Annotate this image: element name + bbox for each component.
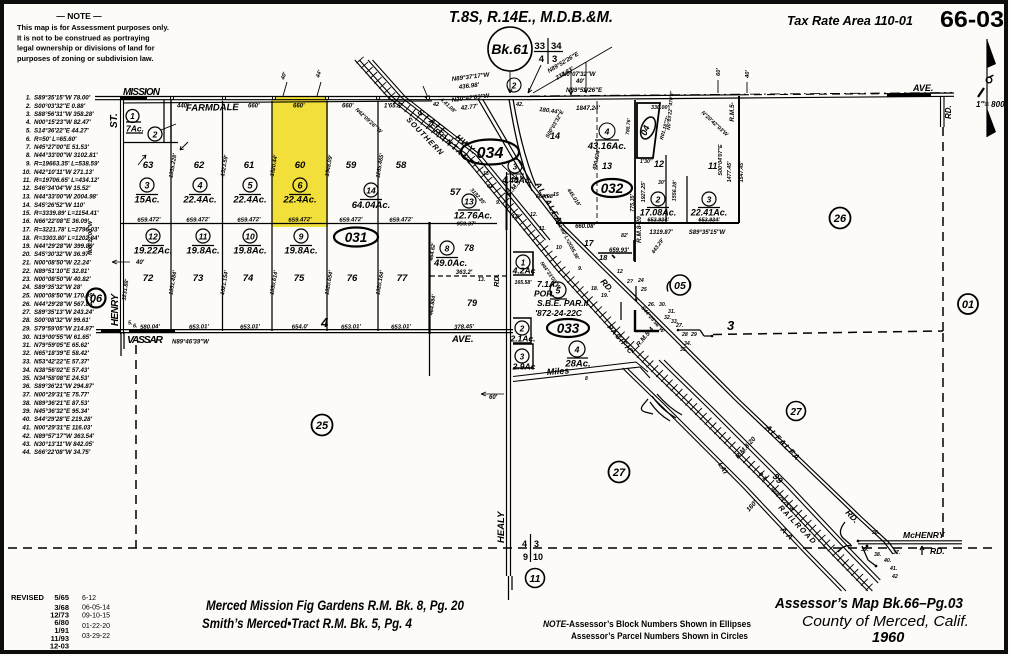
svg-text:N44°29′28″W 567.84′: N44°29′28″W 567.84′: [34, 301, 95, 308]
svg-text:60′: 60′: [716, 68, 722, 76]
svg-text:10: 10: [556, 245, 562, 251]
svg-text:77: 77: [397, 273, 408, 284]
svg-text:653.01′: 653.01′: [240, 324, 261, 331]
svg-text:12: 12: [617, 269, 623, 275]
svg-text:42.: 42.: [21, 433, 31, 440]
svg-text:12.76Ac.: 12.76Ac.: [454, 211, 493, 222]
svg-text:AVE.: AVE.: [451, 334, 473, 345]
svg-text:03-29-22: 03-29-22: [82, 633, 110, 640]
svg-text:13.: 13.: [22, 194, 31, 201]
svg-text:659.472′: 659.472′: [137, 217, 161, 224]
svg-text:1477.45′: 1477.45′: [727, 161, 733, 182]
svg-text:15.: 15.: [22, 210, 31, 217]
svg-text:legal ownership or divisions o: legal ownership or divisions of land for: [17, 44, 155, 53]
svg-text:39.: 39.: [22, 408, 31, 415]
svg-text:18.: 18.: [591, 286, 598, 292]
svg-text:4: 4: [604, 127, 610, 137]
svg-text:580.04′: 580.04′: [140, 324, 161, 331]
svg-text:30.: 30.: [659, 302, 666, 308]
svg-text:61: 61: [244, 160, 255, 171]
svg-text:17.: 17.: [22, 227, 31, 234]
svg-text:13.: 13.: [478, 277, 485, 283]
svg-text:This map is for Assessment pur: This map is for Assessment purposes only…: [17, 23, 169, 32]
svg-text:9: 9: [299, 232, 304, 242]
svg-text:40′: 40′: [135, 260, 145, 266]
svg-text:12-03: 12-03: [50, 642, 69, 651]
svg-text:NOTE-Assessor’s Block Numbers: NOTE-Assessor’s Block Numbers Shown in E…: [543, 619, 751, 629]
svg-text:18: 18: [599, 253, 608, 262]
svg-text:82′: 82′: [621, 233, 629, 239]
svg-text:74: 74: [243, 273, 254, 284]
svg-text:10.: 10.: [22, 169, 31, 176]
svg-text:1″= 800: 1″= 800: [976, 100, 1005, 109]
svg-text:It is not to be construed as p: It is not to be construed as portraying: [17, 33, 150, 42]
svg-text:60: 60: [295, 160, 306, 171]
svg-text:MISSION: MISSION: [123, 87, 161, 98]
svg-text:06-05-14: 06-05-14: [82, 605, 110, 612]
svg-text:12.: 12.: [22, 185, 31, 192]
svg-text:15: 15: [483, 171, 489, 177]
svg-text:10: 10: [245, 232, 255, 242]
svg-text:R=19706.65′ L=434.12′: R=19706.65′ L=434.12′: [34, 177, 99, 184]
svg-text:24.: 24.: [21, 284, 31, 291]
svg-text:32.: 32.: [22, 350, 31, 357]
svg-text:N89°36′21″E 87.53′: N89°36′21″E 87.53′: [34, 400, 89, 407]
svg-text:Smith’s Merced•Tract R.M. Bk: Smith’s Merced•Tract R.M. Bk. 5, Pg. 4: [202, 616, 412, 631]
svg-text:17.08Ac.: 17.08Ac.: [640, 208, 677, 218]
svg-text:N30°13′11″W 842.05′: N30°13′11″W 842.05′: [34, 441, 94, 448]
svg-text:RD.: RD.: [944, 105, 953, 119]
svg-text:8: 8: [585, 376, 588, 382]
svg-text:59: 59: [346, 160, 357, 171]
svg-text:N89°57′17″W 363.54′: N89°57′17″W 363.54′: [34, 433, 95, 440]
svg-text:73: 73: [193, 273, 204, 284]
svg-text:25.: 25.: [21, 293, 31, 300]
svg-text:6.: 6.: [26, 136, 31, 143]
svg-text:2.: 2.: [25, 103, 31, 110]
svg-text:033: 033: [557, 321, 580, 336]
svg-text:S.B.E. PAR.II: S.B.E. PAR.II: [537, 298, 589, 308]
svg-text:N00°29′31″E 75.77′: N00°29′31″E 75.77′: [34, 392, 89, 399]
svg-text:36.: 36.: [22, 383, 31, 390]
svg-text:13: 13: [464, 197, 474, 207]
svg-text:R.M.8-20: R.M.8-20: [636, 216, 643, 243]
svg-text:3: 3: [534, 539, 539, 549]
svg-text:11: 11: [199, 232, 208, 242]
svg-text:19.22Ac.: 19.22Ac.: [134, 246, 173, 257]
svg-text:40′: 40′: [745, 70, 751, 79]
svg-text:14.: 14.: [22, 202, 31, 209]
svg-text:58: 58: [396, 160, 407, 171]
svg-text:N79°59′05″E 65.62′: N79°59′05″E 65.62′: [34, 342, 89, 349]
svg-text:40′: 40′: [575, 79, 585, 85]
svg-text:S00°04′07″E: S00°04′07″E: [718, 144, 724, 176]
svg-text:4: 4: [196, 181, 202, 191]
svg-text:34: 34: [551, 41, 562, 52]
svg-text:Assessor’s Map Bk.66–Pg.03: Assessor’s Map Bk.66–Pg.03: [774, 595, 963, 612]
svg-text:N00°08′50″W 22.24′: N00°08′50″W 22.24′: [34, 260, 91, 267]
svg-text:42: 42: [891, 574, 898, 580]
svg-text:60′: 60′: [489, 395, 498, 401]
svg-text:N66°22′08″E 36.09′: N66°22′08″E 36.09′: [34, 218, 89, 225]
svg-text:5.: 5.: [26, 128, 31, 135]
svg-text:R=19663.35′ L=538.59′: R=19663.35′ L=538.59′: [34, 161, 99, 168]
svg-text:653.01′: 653.01′: [391, 324, 412, 331]
svg-text:19.: 19.: [601, 293, 608, 299]
svg-text:20.: 20.: [21, 251, 31, 258]
svg-text:S45°30′32″W 36.97′: S45°30′32″W 36.97′: [34, 251, 91, 258]
svg-text:AVE.: AVE.: [912, 83, 933, 93]
svg-text:N44°33′00″W 3102.81′: N44°33′00″W 3102.81′: [34, 152, 98, 159]
svg-text:3: 3: [727, 318, 735, 333]
svg-text:30′: 30′: [658, 180, 666, 186]
svg-text:7Ac.: 7Ac.: [126, 124, 144, 134]
svg-text:Bk.61: Bk.61: [491, 41, 529, 57]
svg-text:43.: 43.: [21, 441, 31, 448]
svg-text:2: 2: [519, 325, 525, 334]
svg-text:N44°29′28″W 399.80′: N44°29′28″W 399.80′: [34, 243, 95, 250]
svg-text:S89°35′32″W 28′: S89°35′32″W 28′: [34, 284, 82, 291]
svg-text:22.: 22.: [21, 268, 31, 275]
svg-text:S45°26′52″W 110′: S45°26′52″W 110′: [34, 202, 85, 209]
svg-text:S00°08′32″W 99.61′: S00°08′32″W 99.61′: [34, 317, 91, 324]
svg-text:40.: 40.: [883, 558, 891, 564]
svg-text:11: 11: [530, 573, 541, 585]
svg-text:N65°18′39″E 58.42′: N65°18′39″E 58.42′: [34, 350, 89, 357]
svg-text:S44°29′28″E 219.28′: S44°29′28″E 219.28′: [34, 416, 92, 423]
svg-text:660′: 660′: [248, 104, 260, 110]
svg-text:9.: 9.: [496, 200, 500, 206]
svg-text:7.: 7.: [26, 144, 31, 151]
svg-text:33: 33: [534, 41, 545, 52]
svg-text:REVISED: REVISED: [11, 593, 45, 602]
svg-text:4: 4: [574, 345, 580, 355]
svg-text:Tax Rate Area 110-01: Tax Rate Area 110-01: [787, 13, 913, 28]
svg-text:1847.24′: 1847.24′: [576, 105, 600, 112]
svg-text:41.: 41.: [889, 566, 897, 572]
svg-text:031: 031: [345, 230, 368, 245]
svg-text:9.: 9.: [26, 161, 31, 168]
svg-text:22.4Ac.: 22.4Ac.: [182, 195, 216, 206]
svg-text:33.: 33.: [671, 319, 678, 325]
svg-text:12!: 12!: [512, 214, 520, 220]
svg-text:26.: 26.: [21, 301, 31, 308]
svg-text:Assessor’s Parcel Numbers Show: Assessor’s Parcel Numbers Shown in Circl…: [571, 631, 748, 641]
svg-text:775.35′: 775.35′: [630, 193, 636, 211]
svg-text:4.: 4.: [25, 119, 31, 126]
svg-text:R.M.5-: R.M.5-: [729, 102, 736, 122]
svg-text:R=3339.89′ L=1154.41′: R=3339.89′ L=1154.41′: [34, 210, 99, 217]
svg-text:19.8Ac.: 19.8Ac.: [186, 246, 219, 257]
svg-text:165.58′: 165.58′: [514, 280, 532, 286]
svg-text:37.: 37.: [22, 392, 31, 399]
svg-text:′872-24-22C: ′872-24-22C: [535, 308, 583, 318]
svg-text:VASSAR: VASSAR: [127, 334, 163, 346]
svg-text:34.: 34.: [22, 367, 31, 374]
svg-text:19.: 19.: [22, 243, 31, 250]
svg-text:4.2Ac: 4.2Ac: [512, 266, 536, 276]
svg-text:N00°29′31″E 116.03′: N00°29′31″E 116.03′: [34, 425, 92, 432]
svg-text:S89°35′15″W 78.00′: S89°35′15″W 78.00′: [34, 95, 91, 102]
svg-text:660′: 660′: [342, 104, 354, 110]
svg-text:654.0′: 654.0′: [292, 324, 309, 331]
svg-text:28: 28: [681, 332, 688, 338]
svg-text:1556.28′: 1556.28′: [672, 180, 679, 202]
svg-text:19.8Ac.: 19.8Ac.: [284, 246, 317, 257]
svg-text:653.01′: 653.01′: [341, 324, 362, 331]
svg-text:10: 10: [533, 552, 543, 562]
svg-text:25: 25: [640, 287, 647, 293]
svg-text:2.1Ac.: 2.1Ac.: [509, 334, 535, 344]
svg-text:N34°58′08″E 24.53′: N34°58′08″E 24.53′: [34, 375, 89, 382]
svg-text:S89°35′13″W 243.24′: S89°35′13″W 243.24′: [34, 309, 94, 316]
svg-text:33.: 33.: [22, 359, 31, 366]
svg-text:1: 1: [130, 112, 135, 121]
svg-text:43.: 43.: [486, 184, 494, 190]
svg-text:19.8Ac.: 19.8Ac.: [233, 246, 266, 257]
svg-text:3: 3: [707, 195, 712, 205]
svg-text:S89°36′21″W 294.87′: S89°36′21″W 294.87′: [34, 383, 94, 390]
svg-text:6-12: 6-12: [82, 595, 96, 602]
svg-text:11.: 11.: [23, 177, 31, 184]
svg-text:440′: 440′: [176, 104, 189, 110]
svg-text:57: 57: [450, 187, 461, 198]
svg-text:28Ac.: 28Ac.: [564, 359, 590, 370]
svg-text:S88°56′31″W 358.28′: S88°56′31″W 358.28′: [34, 111, 94, 118]
svg-text:28.: 28.: [21, 317, 31, 324]
svg-text:R=50′ L=65.60′: R=50′ L=65.60′: [34, 136, 77, 143]
svg-text:N38°56′02″E 57.43′: N38°56′02″E 57.43′: [34, 367, 89, 374]
svg-text:37.: 37.: [893, 550, 900, 556]
svg-text:3: 3: [513, 163, 518, 172]
svg-text:959.37′: 959.37′: [456, 222, 476, 228]
svg-text:032: 032: [601, 181, 624, 196]
svg-text:660′: 660′: [293, 104, 305, 110]
svg-text:POR.: POR.: [534, 289, 555, 299]
svg-text:43.16Ac.: 43.16Ac.: [587, 141, 627, 152]
svg-text:26: 26: [833, 213, 847, 225]
svg-text:2.9Ac: 2.9Ac: [512, 362, 536, 372]
svg-text:11.: 11.: [539, 226, 546, 232]
svg-text:S79°59′05″W 214.87′: S79°59′05″W 214.87′: [34, 326, 94, 333]
svg-text:36.: 36.: [872, 530, 879, 536]
svg-text:72: 72: [143, 273, 154, 284]
svg-text:4.40Ac.: 4.40Ac.: [501, 175, 532, 185]
svg-text:26.: 26.: [647, 302, 655, 308]
svg-text:30.: 30.: [22, 334, 31, 341]
svg-text:S46°34′04″W 15.52′: S46°34′04″W 15.52′: [34, 185, 91, 192]
svg-text:330.00′: 330.00′: [651, 105, 669, 111]
svg-text:11: 11: [708, 161, 717, 171]
svg-text:S66°22′08″W 34.75′: S66°22′08″W 34.75′: [34, 449, 91, 456]
svg-text:22.4Ac.: 22.4Ac.: [232, 195, 266, 206]
svg-text:40.: 40.: [21, 416, 31, 423]
svg-text:4: 4: [522, 539, 527, 549]
svg-text:64.04Ac.: 64.04Ac.: [352, 200, 391, 211]
svg-text:15: 15: [553, 192, 559, 198]
svg-text:S14°36′22″E 44.27′: S14°36′22″E 44.27′: [34, 128, 89, 135]
svg-text:2: 2: [655, 195, 661, 205]
svg-text:12: 12: [654, 159, 664, 169]
svg-text:1927.25′: 1927.25′: [641, 181, 647, 202]
svg-text:2: 2: [152, 130, 158, 140]
svg-text:22.41Ac.: 22.41Ac.: [690, 208, 728, 218]
svg-text:N44°33′00″W 2004.98′: N44°33′00″W 2004.98′: [34, 194, 98, 201]
svg-text:660.08′: 660.08′: [575, 224, 595, 230]
svg-text:S00°03′32″E 0.88′: S00°03′32″E 0.88′: [34, 103, 86, 110]
svg-text:N42°10′11″W 271.13′: N42°10′11″W 271.13′: [34, 169, 94, 176]
svg-text:ST.: ST.: [109, 113, 120, 128]
svg-text:County of Merced, Calif.: County of Merced, Calif.: [802, 613, 969, 630]
svg-text:653.01′: 653.01′: [189, 324, 210, 331]
svg-text:659.472′: 659.472′: [339, 217, 363, 224]
svg-text:659.472′: 659.472′: [389, 217, 413, 224]
svg-text:659.472′: 659.472′: [288, 217, 312, 224]
svg-text:15Ac.: 15Ac.: [134, 195, 159, 206]
svg-text:T.8S, R.14E., M.D.B.&M.: T.8S, R.14E., M.D.B.&M.: [449, 9, 613, 26]
svg-text:659.472′: 659.472′: [186, 217, 210, 224]
svg-text:N00°15′23″W 82.47′: N00°15′23″W 82.47′: [34, 119, 91, 126]
svg-text:16.: 16.: [22, 218, 31, 225]
svg-text:8.: 8.: [26, 152, 31, 159]
svg-text:35.: 35.: [22, 375, 31, 382]
svg-text:2?: 2?: [626, 279, 634, 285]
svg-text:27: 27: [789, 407, 802, 418]
svg-text:41.: 41.: [21, 425, 31, 432]
svg-text:35.: 35.: [680, 347, 687, 353]
svg-text:31.: 31.: [22, 342, 31, 349]
svg-text:N19°00′55″W 61.65′: N19°00′55″W 61.65′: [34, 334, 91, 341]
svg-text:09-10-15: 09-10-15: [82, 613, 110, 620]
svg-text:23.: 23.: [21, 276, 31, 283]
svg-text:S89°35′15″W: S89°35′15″W: [689, 230, 727, 236]
svg-text:42: 42: [432, 102, 439, 108]
svg-text:63: 63: [143, 160, 154, 171]
svg-text:3: 3: [520, 353, 525, 362]
svg-text:44.: 44.: [21, 449, 31, 456]
svg-text:05: 05: [674, 280, 686, 292]
svg-text:Merced Mission Fig Gardens: Merced Mission Fig Gardens R.M. Bk. 8, P…: [206, 598, 464, 613]
svg-text:N89°51′10″E 32.81′: N89°51′10″E 32.81′: [34, 268, 89, 275]
svg-text:9: 9: [523, 552, 528, 562]
svg-text:1547.45′: 1547.45′: [739, 161, 745, 182]
svg-text:378.45′: 378.45′: [454, 324, 475, 331]
svg-text:76: 76: [347, 273, 358, 284]
svg-text:HEALY: HEALY: [496, 510, 507, 543]
svg-text:42.: 42.: [515, 102, 524, 108]
svg-text:22.4Ac.: 22.4Ac.: [282, 195, 316, 206]
svg-text:24: 24: [637, 278, 644, 284]
svg-text:78: 78: [464, 243, 474, 253]
svg-text:363.2′: 363.2′: [456, 270, 473, 276]
svg-text:14: 14: [366, 186, 376, 196]
svg-text:18.: 18.: [22, 235, 31, 242]
svg-text:659.472′: 659.472′: [237, 217, 261, 224]
svg-text:FARMDALE: FARMDALE: [186, 102, 240, 114]
svg-text:27.: 27.: [21, 309, 31, 316]
svg-text:62: 62: [194, 160, 205, 171]
svg-text:— NOTE —: — NOTE —: [56, 11, 102, 21]
svg-text:06: 06: [90, 293, 103, 305]
svg-text:N45°36′32″E 95.34′: N45°36′32″E 95.34′: [34, 408, 89, 415]
svg-text:8: 8: [445, 244, 450, 254]
svg-text:4: 4: [320, 315, 329, 330]
svg-text:12.: 12.: [530, 212, 537, 218]
svg-text:034: 034: [477, 145, 504, 162]
svg-text:3.: 3.: [26, 111, 31, 118]
svg-text:49.0Ac.: 49.0Ac.: [433, 258, 467, 269]
svg-text:HENRY: HENRY: [110, 293, 121, 326]
svg-text:653.934′: 653.934′: [698, 218, 720, 224]
svg-text:66-03: 66-03: [940, 6, 1004, 32]
svg-text:1.: 1.: [26, 95, 31, 102]
svg-text:McHENRY: McHENRY: [903, 530, 946, 540]
svg-text:75: 75: [294, 273, 305, 284]
svg-text:N89°46′39″W: N89°46′39″W: [172, 340, 210, 346]
svg-text:N45°27′00″E 51.53′: N45°27′00″E 51.53′: [34, 144, 89, 151]
svg-text:38.: 38.: [874, 552, 881, 558]
svg-text:79: 79: [467, 298, 477, 308]
svg-text:25: 25: [315, 420, 329, 432]
svg-text:29.: 29.: [21, 326, 31, 333]
svg-text:12: 12: [148, 232, 158, 242]
svg-text:N53°42′22″E 57.37′: N53°42′22″E 57.37′: [34, 359, 89, 366]
svg-text:13: 13: [602, 161, 612, 171]
svg-text:21.: 21.: [21, 260, 31, 267]
svg-text:653.934′: 653.934′: [647, 218, 669, 224]
svg-text:N00°17′00″W: N00°17′00″W: [88, 220, 94, 255]
svg-text:9.: 9.: [578, 266, 582, 272]
svg-text:01: 01: [962, 299, 974, 311]
svg-text:01-22-20: 01-22-20: [82, 623, 110, 630]
svg-text:5/65: 5/65: [54, 593, 69, 602]
svg-text:38.: 38.: [22, 400, 31, 407]
svg-text:3: 3: [144, 181, 149, 191]
svg-text:1′30″: 1′30″: [640, 159, 653, 165]
svg-text:27: 27: [612, 467, 626, 479]
svg-text:29: 29: [690, 332, 697, 338]
svg-text:6.: 6.: [133, 324, 138, 330]
svg-text:): ): [687, 280, 692, 292]
svg-text:N00°08′50″W 40.82′: N00°08′50″W 40.82′: [34, 276, 91, 283]
svg-text:purposes of zoning or subdivis: purposes of zoning or subdivision law.: [17, 54, 153, 63]
svg-text:1319.87′: 1319.87′: [649, 230, 673, 236]
svg-text:4: 4: [539, 54, 545, 65]
svg-text:1960: 1960: [872, 630, 904, 646]
